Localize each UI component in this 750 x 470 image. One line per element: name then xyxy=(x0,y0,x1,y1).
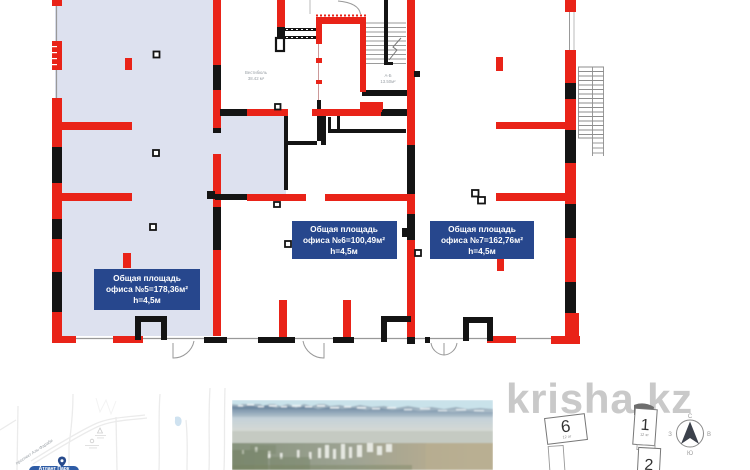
svg-text:офиса №7=162,76м²: офиса №7=162,76м² xyxy=(441,235,523,245)
svg-text:krisha.kz: krisha.kz xyxy=(506,375,693,422)
svg-text:12 эт: 12 эт xyxy=(640,433,649,438)
svg-text:З: З xyxy=(668,432,672,438)
svg-text:А-Б: А-Б xyxy=(384,73,391,78)
svg-text:Ю: Ю xyxy=(687,451,693,457)
svg-text:офиса №6=100,49м²: офиса №6=100,49м² xyxy=(303,235,385,245)
svg-text:13.50м²: 13.50м² xyxy=(380,79,396,84)
svg-text:Вестибюль: Вестибюль xyxy=(245,70,268,75)
svg-text:1: 1 xyxy=(640,417,650,435)
svg-text:2: 2 xyxy=(644,457,654,470)
svg-text:проспект Аль-Фараби: проспект Аль-Фараби xyxy=(15,438,55,466)
svg-text:Атлант Парк: Атлант Парк xyxy=(39,466,70,470)
svg-text:Общая площадь: Общая площадь xyxy=(310,224,378,234)
svg-text:Общая площадь: Общая площадь xyxy=(448,224,516,234)
svg-text:h=4,5м: h=4,5м xyxy=(468,246,496,256)
svg-text:офиса №5=178,36м²: офиса №5=178,36м² xyxy=(106,284,188,294)
svg-text:С: С xyxy=(688,414,693,420)
svg-text:Общая площадь: Общая площадь xyxy=(113,273,181,283)
svg-text:38.42 м²: 38.42 м² xyxy=(248,76,265,81)
svg-text:В: В xyxy=(707,432,711,438)
svg-text:h=4,5м: h=4,5м xyxy=(330,246,358,256)
svg-text:h=4,5м: h=4,5м xyxy=(133,295,161,305)
